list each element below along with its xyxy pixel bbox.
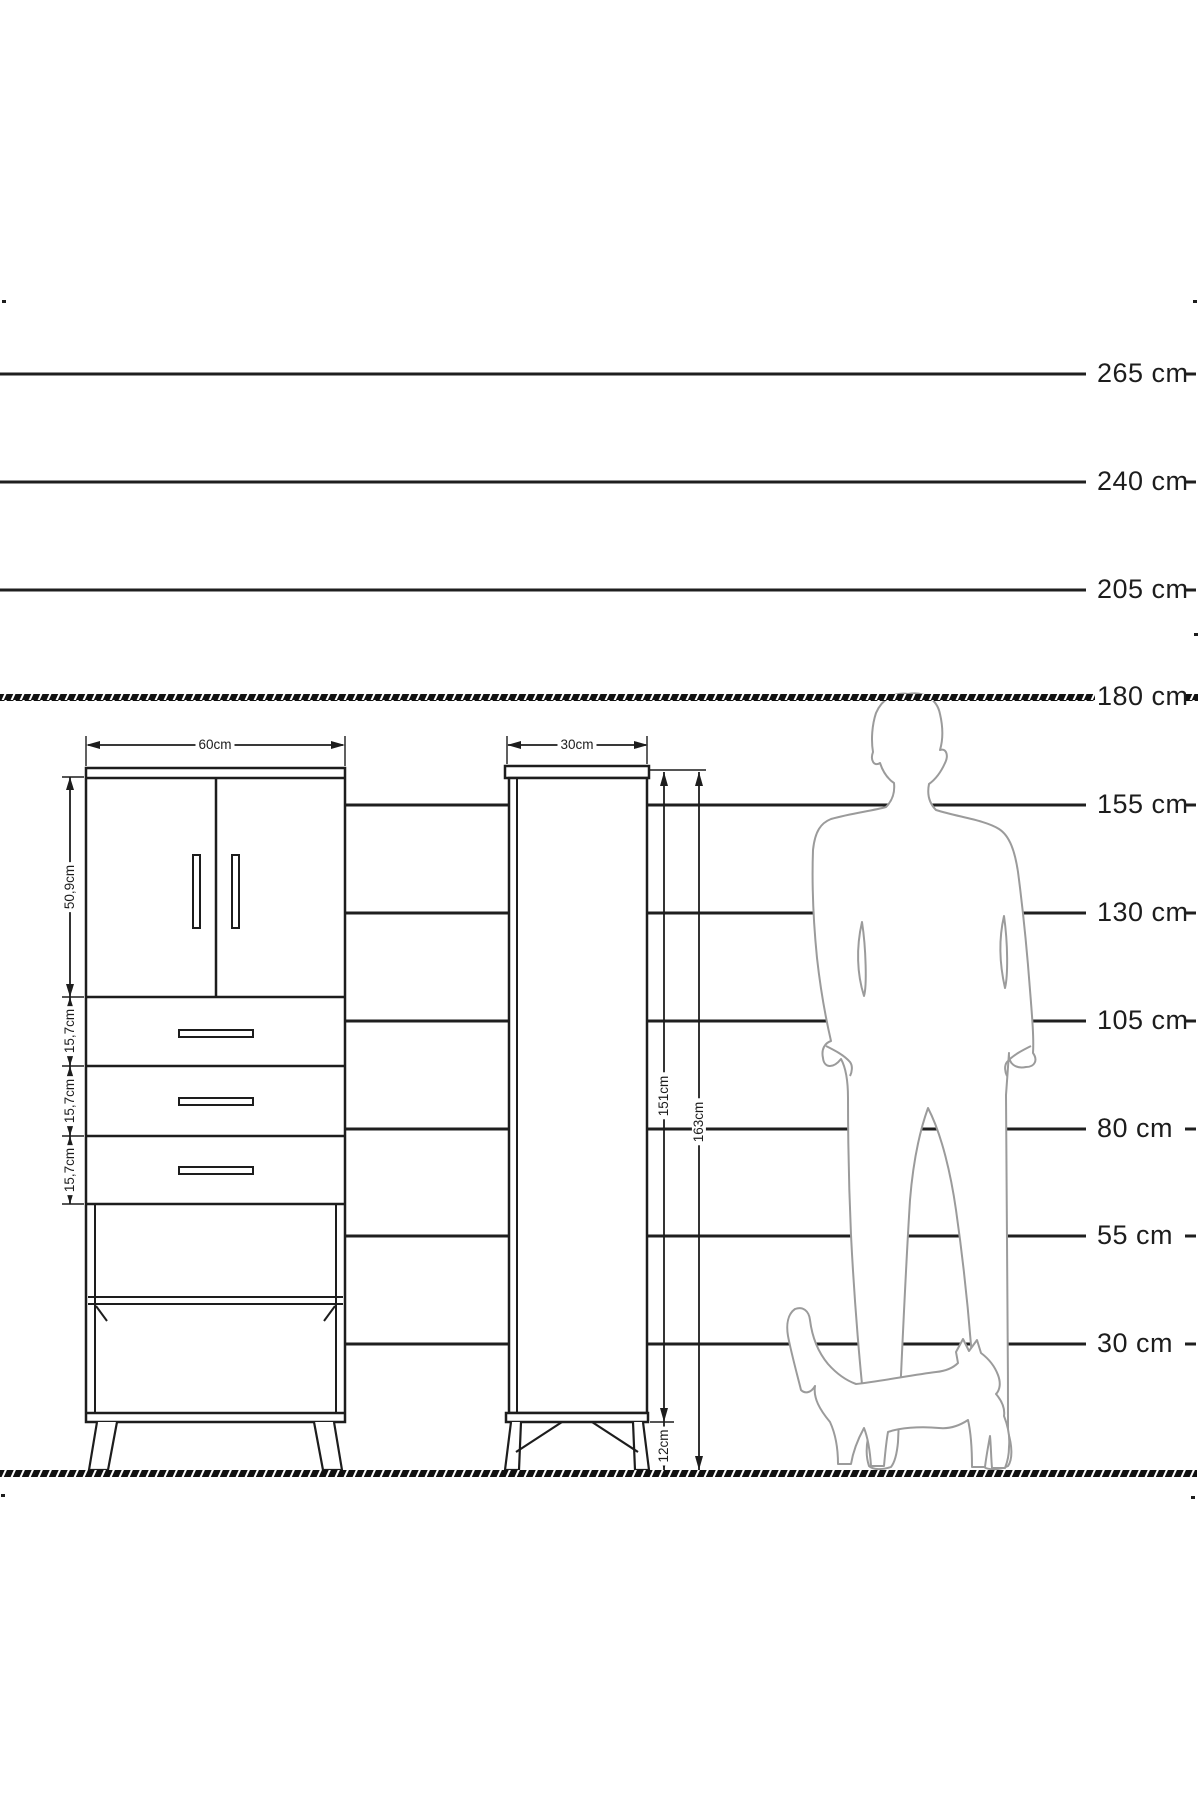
line-art bbox=[0, 0, 1200, 1800]
scale-label-265: 265 cm bbox=[1097, 358, 1189, 389]
furniture-dimension-diagram: 265 cm 240 cm 205 cm 180 cm 155 cm 130 c… bbox=[0, 0, 1200, 1800]
ground-line bbox=[0, 1470, 1197, 1477]
scale-label-240: 240 cm bbox=[1097, 466, 1189, 497]
right-cabinet bbox=[505, 766, 649, 1470]
drawer-handle-2 bbox=[179, 1098, 253, 1105]
right-cabinet-leg-brace-left bbox=[516, 1422, 562, 1452]
left-cabinet-leg-right bbox=[314, 1422, 342, 1470]
right-cabinet-leg-left bbox=[505, 1422, 521, 1470]
right-cabinet-leg-height-label: 12cm bbox=[657, 1426, 671, 1465]
scale-label-30: 30 cm bbox=[1097, 1328, 1173, 1359]
right-cabinet-leg-right bbox=[633, 1422, 649, 1470]
right-cabinet-leg-brace-right bbox=[592, 1422, 638, 1452]
right-cabinet-total-height-label: 163cm bbox=[692, 1099, 706, 1146]
right-cabinet-body bbox=[509, 778, 647, 1413]
right-cabinet-bottom-band bbox=[506, 1413, 648, 1422]
scale-label-130: 130 cm bbox=[1097, 897, 1189, 928]
label-tail-dashes bbox=[1185, 374, 1196, 1344]
left-cabinet bbox=[86, 768, 345, 1470]
person-outline bbox=[813, 693, 1036, 1469]
right-cabinet-top-band bbox=[505, 766, 649, 778]
drawer-handle-3 bbox=[179, 1167, 253, 1174]
left-door-handle-right bbox=[232, 855, 239, 928]
drawer-handle-1 bbox=[179, 1030, 253, 1037]
scale-label-205: 205 cm bbox=[1097, 574, 1189, 605]
scale-label-80: 80 cm bbox=[1097, 1113, 1173, 1144]
scale-label-105: 105 cm bbox=[1097, 1005, 1189, 1036]
scale-label-180: 180 cm bbox=[1097, 681, 1189, 712]
drawer-height-label-1: 15,7cm bbox=[63, 1006, 77, 1056]
scale-label-55: 55 cm bbox=[1097, 1220, 1173, 1251]
right-cabinet-body-height-label: 151cm bbox=[657, 1073, 671, 1120]
left-cabinet-width-label: 60cm bbox=[195, 738, 234, 752]
drawer-height-label-3: 15,7cm bbox=[63, 1145, 77, 1195]
drawer-height-label-2: 15,7cm bbox=[63, 1076, 77, 1126]
left-cabinet-door-height-label: 50,9cm bbox=[63, 862, 77, 912]
scale-label-155: 155 cm bbox=[1097, 789, 1189, 820]
left-cabinet-leg-left bbox=[89, 1422, 117, 1470]
right-cabinet-width-label: 30cm bbox=[557, 738, 596, 752]
left-door-handle-left bbox=[193, 855, 200, 928]
wall-line-180 bbox=[0, 694, 1095, 701]
person-silhouette bbox=[813, 693, 1036, 1469]
